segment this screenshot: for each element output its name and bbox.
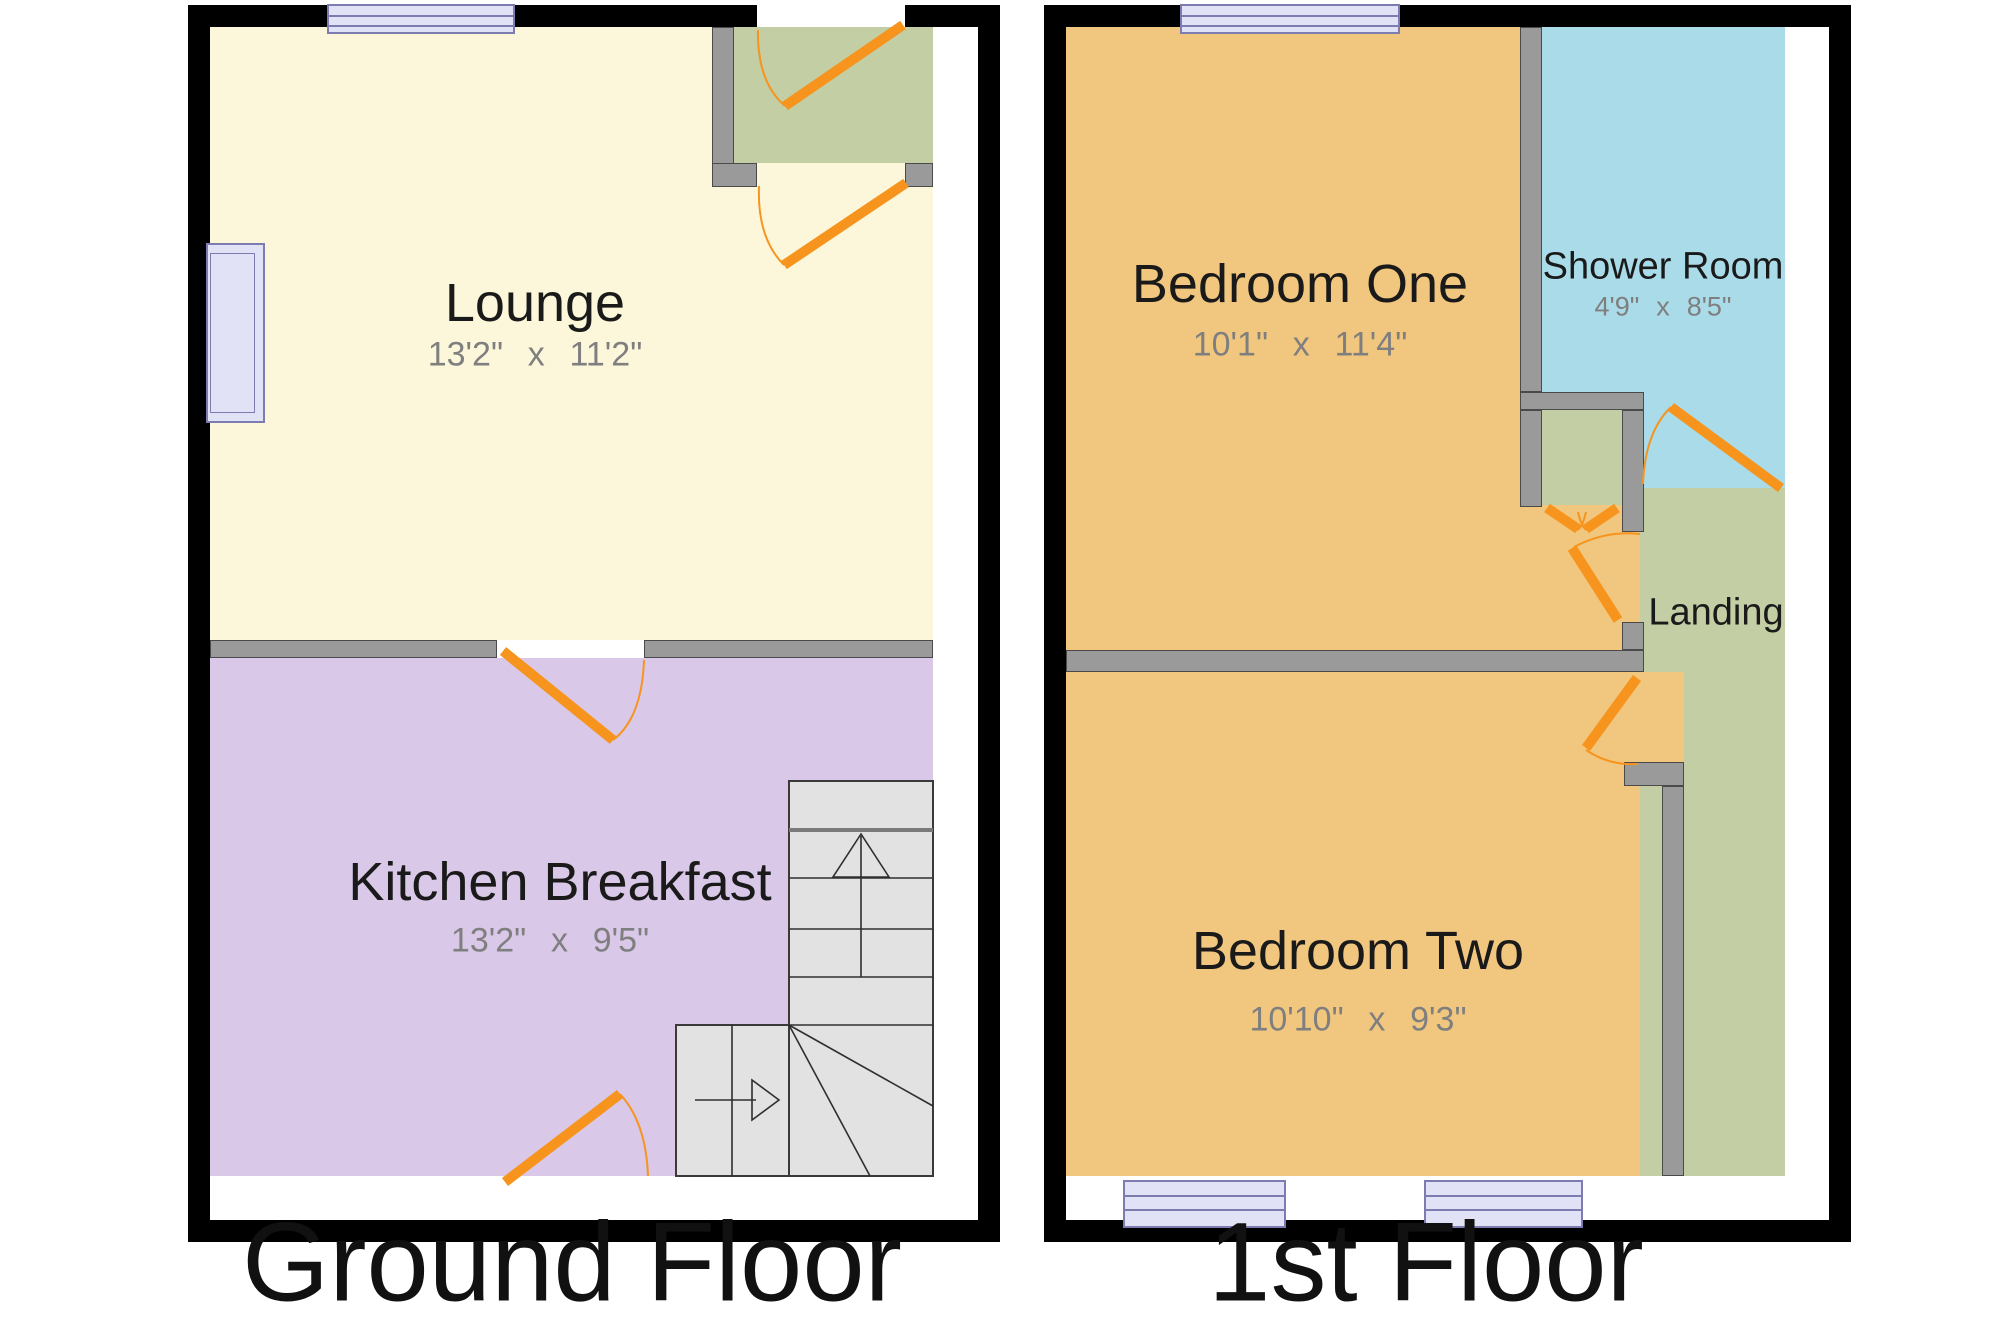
divider-wall-left [210,640,497,658]
lounge-top-window [327,4,515,34]
landing-name: Landing [1648,592,1783,635]
porch-wall-stub [905,163,933,187]
bedroom-two-dims: 10'10" x 9'3" [1249,1001,1466,1040]
cupboard-wall-right [1622,410,1644,532]
porch-wall-foot [712,163,757,187]
lounge-side-window [206,243,265,423]
cupboard-wall-top [1520,392,1644,410]
first-floor-title: 1st Floor [1208,1198,1644,1327]
kitchen-name: Kitchen Breakfast [348,851,771,913]
shower-room-dims: 4'9" x 8'5" [1595,292,1732,323]
bedroom-one-dims: 10'1" x 11'4" [1193,326,1408,365]
landing-wall-step [1624,762,1684,786]
window-mullion [328,25,514,27]
bedroom-one-door-stub [1622,622,1644,650]
window-inner-pane [210,253,255,413]
entrance-doorway-gap [757,5,905,27]
airing-cupboard [1542,410,1622,505]
lounge-dims: 13'2" x 11'2" [428,336,643,375]
landing-wall-vertical [1662,786,1684,1176]
divider-wall-right [644,640,933,658]
bedroom-two-doorway-floor [1640,672,1684,762]
bedroom-two-name: Bedroom Two [1192,920,1524,982]
window-mullion [1181,25,1399,27]
floorplan-canvas: Lounge 13'2" x 11'2" Kitchen Breakfast 1… [0,0,2000,1333]
room-entrance-porch [734,27,933,163]
bedroom-one-window [1180,4,1400,34]
window-mullion [328,15,514,17]
lounge-name: Lounge [445,272,625,334]
shower-room-name: Shower Room [1543,246,1784,289]
shower-wall-vertical [1520,27,1542,392]
kitchen-dims: 13'2" x 9'5" [451,922,649,961]
ground-floor-title: Ground Floor [242,1198,902,1327]
kitchen-back-doorway-gap [500,1176,650,1198]
bedroom-divider-wall [1066,650,1644,672]
cupboard-wall-left [1520,410,1542,507]
room-kitchen [210,658,933,1176]
bedroom-one-name: Bedroom One [1132,253,1468,315]
window-mullion [1181,15,1399,17]
